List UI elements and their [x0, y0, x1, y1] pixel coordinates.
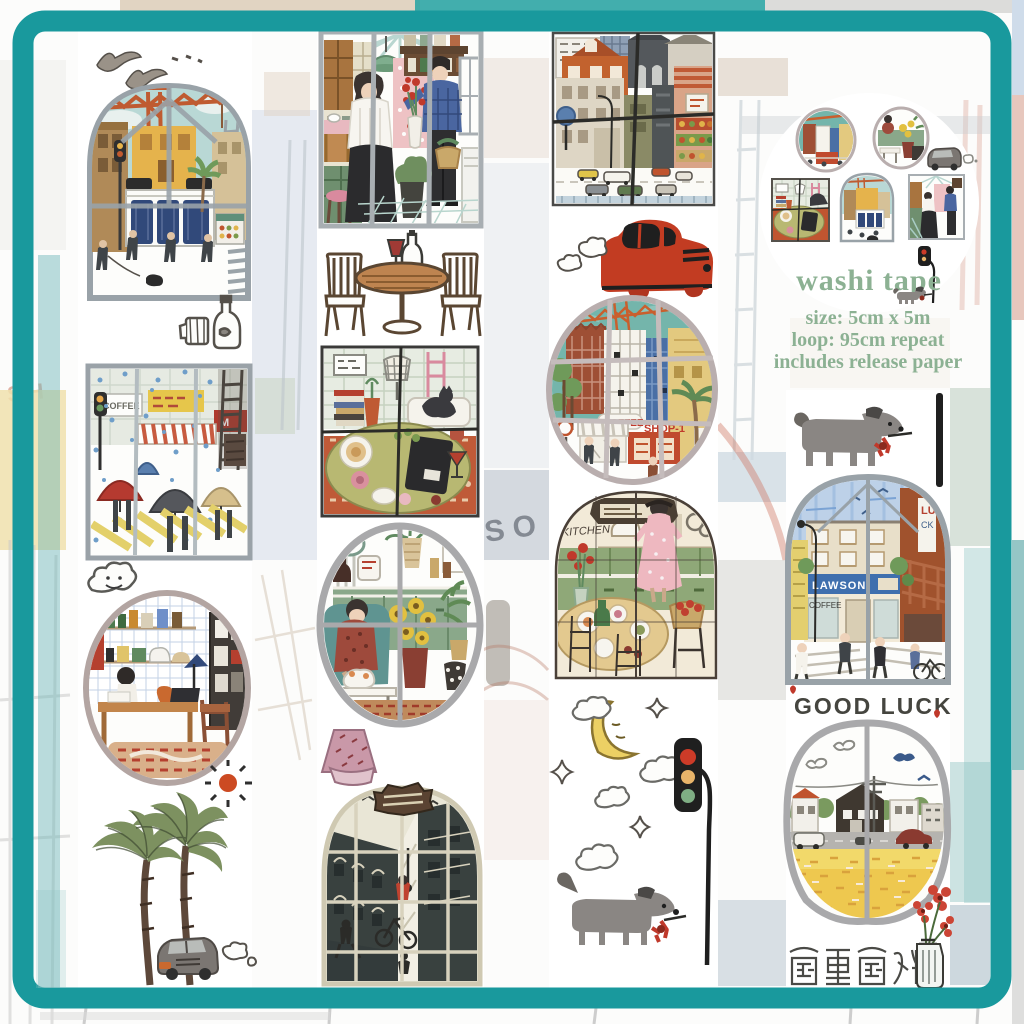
svg-text:loop: 95cm repeat: loop: 95cm repeat	[792, 329, 945, 351]
svg-text:COFFEE: COFFEE	[103, 401, 140, 411]
svg-text:LAWSON: LAWSON	[812, 580, 866, 592]
svg-text:COFFEE: COFFEE	[809, 601, 841, 610]
svg-text:includes release paper: includes release paper	[774, 351, 963, 373]
svg-text:GOOD LUCK: GOOD LUCK	[794, 693, 953, 719]
svg-text:size: 5cm x 5m: size: 5cm x 5m	[806, 307, 931, 329]
svg-text:CK: CK	[921, 520, 934, 530]
